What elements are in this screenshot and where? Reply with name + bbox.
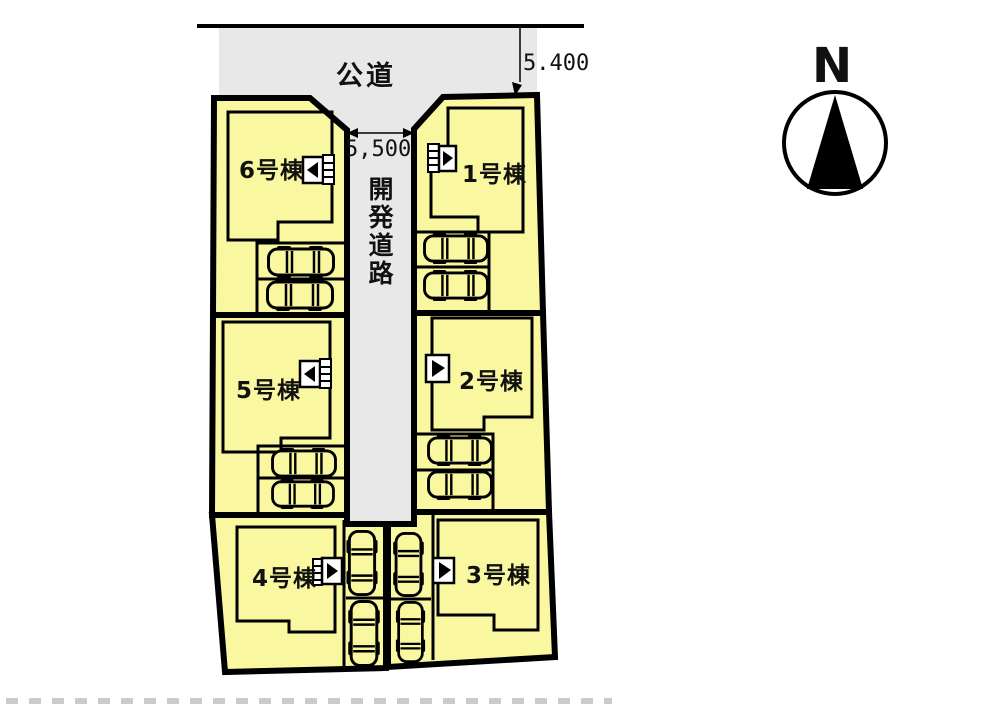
car-icon [393, 533, 424, 595]
lot-2-label: 2号棟 [459, 362, 524, 396]
car-icon [268, 279, 333, 311]
lot-5-label: 5号棟 [236, 371, 301, 405]
site-plan: 公道 5.400 5,500 開発道路 1号棟 2号棟 3号棟 4号棟 5号棟 … [0, 0, 1000, 707]
car-icon [346, 531, 377, 594]
car-icon [396, 602, 425, 661]
lot-3-label: 3号棟 [466, 556, 531, 590]
dev-road-width-dim: 5,500 [345, 137, 411, 162]
car-icon [425, 270, 488, 301]
north-arrow [784, 92, 886, 194]
north-label: N [812, 38, 852, 94]
lot-6-label: 6号棟 [239, 151, 304, 185]
entrance-icon-4 [313, 558, 342, 585]
entrance-icon-1 [428, 144, 456, 172]
car-icon [273, 448, 336, 479]
entrance-icon-2 [426, 355, 449, 382]
car-icon [429, 435, 492, 466]
lot-1-label: 1号棟 [462, 155, 527, 189]
site-plan-svg [0, 0, 1000, 707]
dev-road-label: 開発道路 [367, 176, 395, 288]
car-icon [273, 479, 334, 509]
car-icon [425, 233, 488, 264]
lot-4-label: 4号棟 [252, 559, 317, 593]
car-icon [429, 469, 492, 500]
car-icon [269, 246, 334, 278]
public-road-width-dim: 5.400 [523, 51, 589, 76]
entrance-icon-5 [300, 359, 331, 388]
cropped-text-artifact [6, 698, 612, 704]
car-icon [348, 601, 380, 665]
public-road-label: 公道 [336, 54, 396, 93]
entrance-icon-6 [303, 155, 334, 184]
entrance-icon-3 [433, 558, 454, 583]
